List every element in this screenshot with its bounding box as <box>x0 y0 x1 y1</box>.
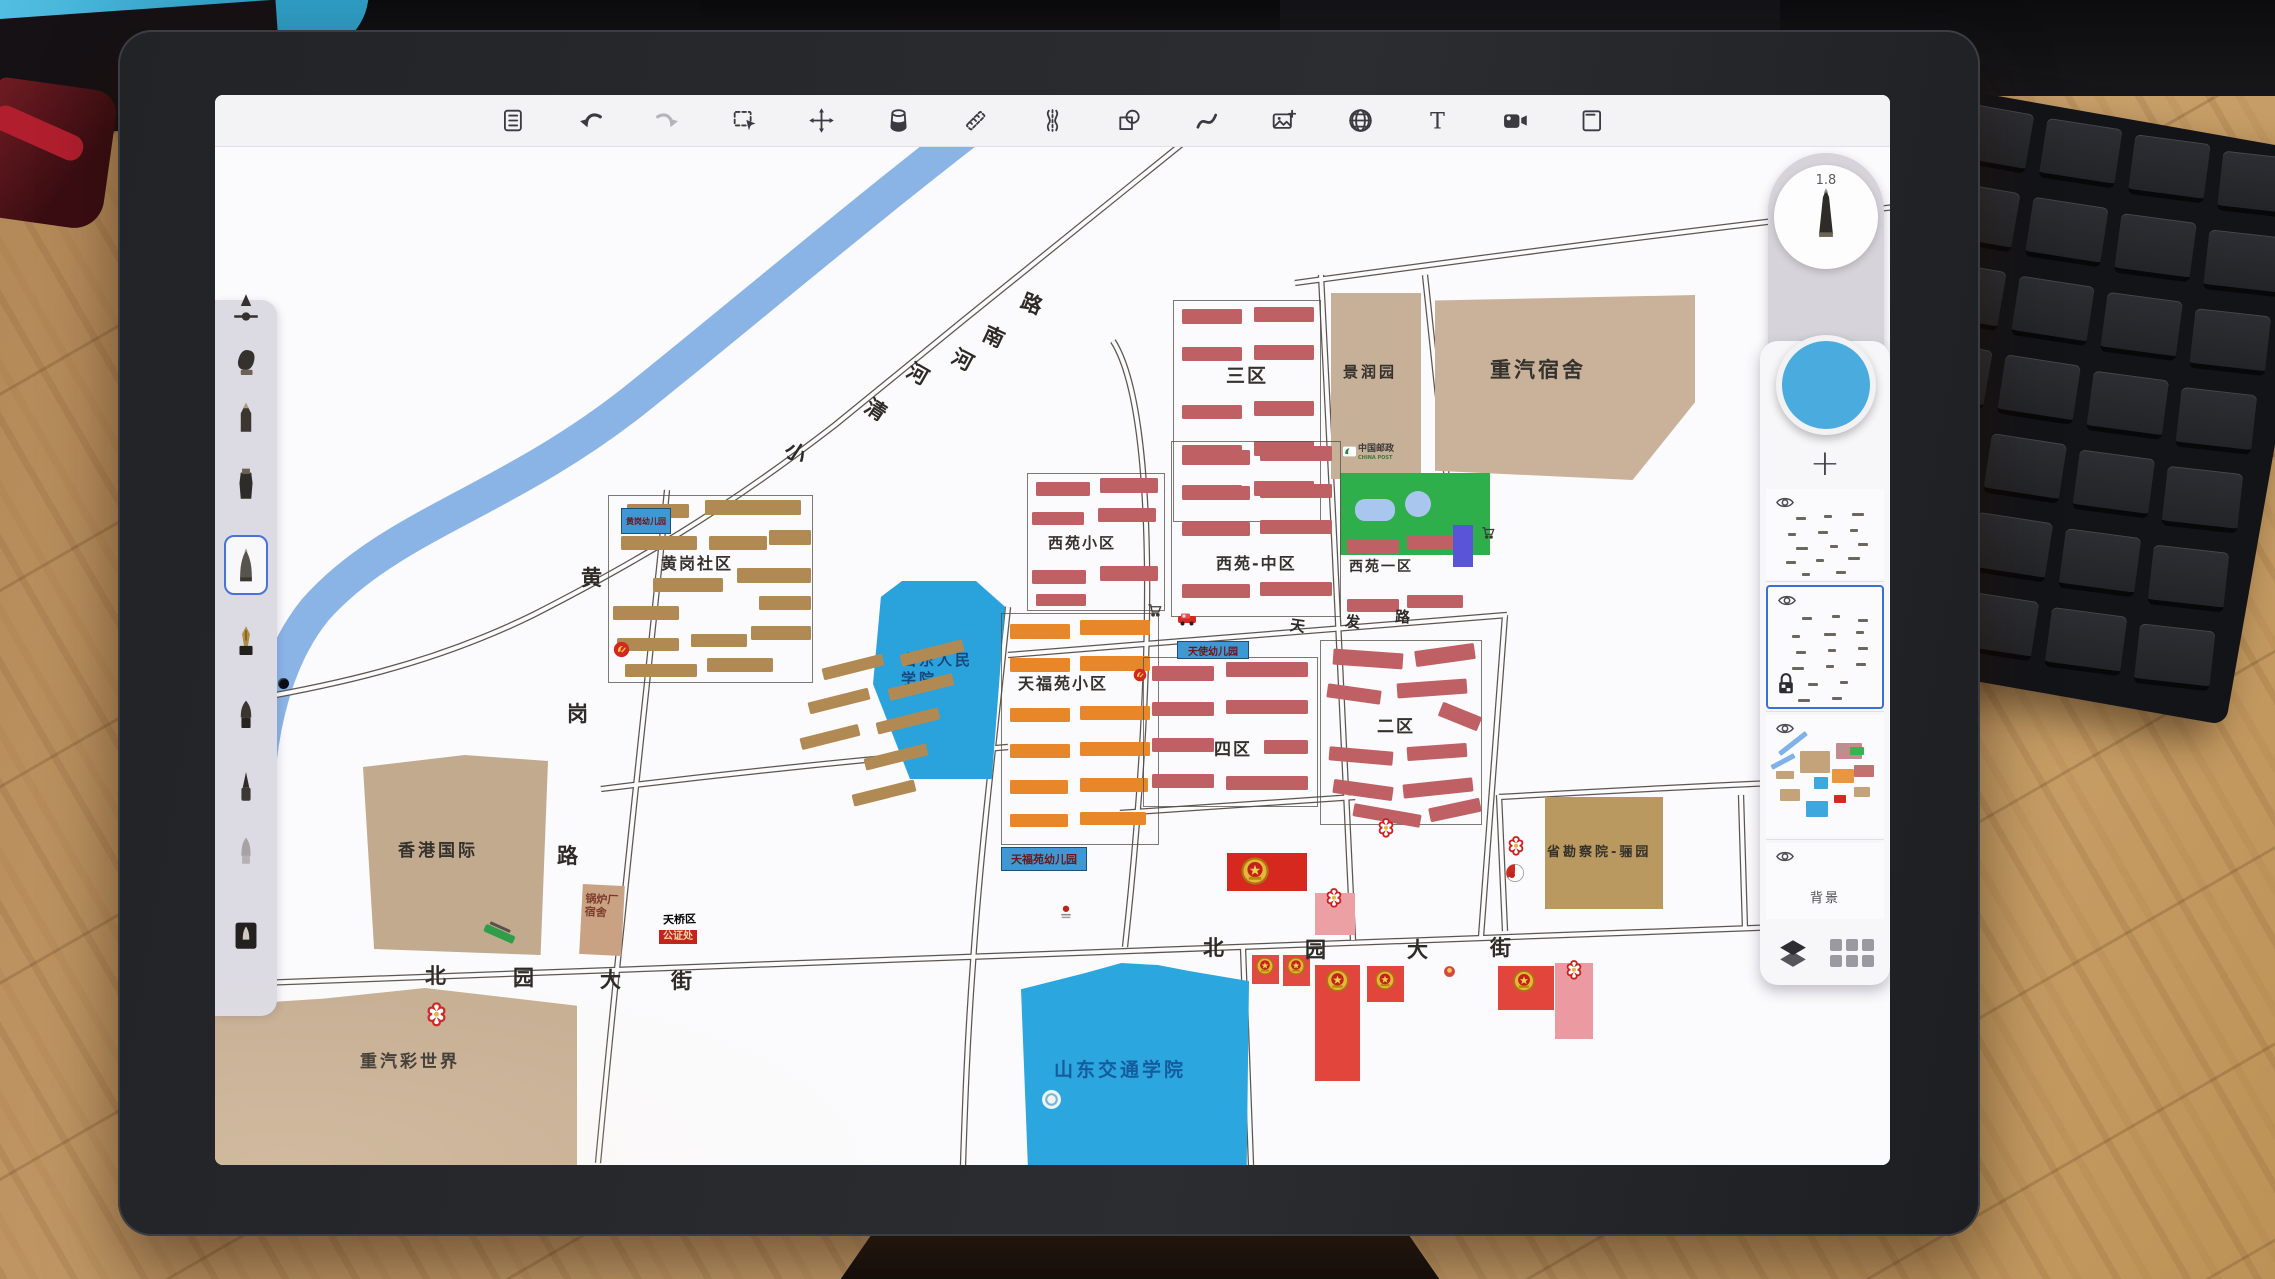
road-name-char: 路 <box>557 843 578 869</box>
layer-background[interactable]: 背景 <box>1766 843 1884 919</box>
road-name-char: 黄 <box>581 565 602 591</box>
brush-inkpen[interactable] <box>224 615 268 665</box>
estate-erqu: 二区 <box>1320 640 1482 825</box>
cart-icon <box>1147 603 1162 622</box>
label-sanqu: 三区 <box>1226 365 1268 389</box>
pond-2 <box>1405 491 1431 517</box>
text-icon[interactable]: T <box>1423 106 1453 136</box>
desk-photo: 香港国际重汽彩世界景润园重汽宿舍省勘察院-骊园山东人民 学院山东交通学院黄岗社区… <box>0 0 2275 1279</box>
brush-airbrush[interactable] <box>224 335 268 385</box>
layer-visibility-eye-icon[interactable] <box>1774 721 1796 740</box>
road-name-char: 园 <box>1305 937 1326 963</box>
shapes-icon[interactable] <box>1115 106 1145 136</box>
pond-1 <box>1355 499 1395 521</box>
road-name-char: 大 <box>600 967 621 993</box>
area-shandong-jiaotong-univ: 山东交通学院 <box>1021 963 1249 1165</box>
estate-siqu: 四区 <box>1143 657 1318 807</box>
right-panel: 1.8 + 背景 <box>1760 153 1890 985</box>
svg-text:T: T <box>1430 108 1445 134</box>
postlogo-icon <box>1343 443 1356 462</box>
boiler-dorm-label: 锅炉厂 宿舍 <box>584 892 618 920</box>
cross-icon <box>1505 835 1527 861</box>
top-toolbar: T <box>215 95 1890 147</box>
layer-visibility-eye-icon[interactable] <box>1774 495 1796 514</box>
emblem-icon <box>1513 970 1535 996</box>
tablet: 香港国际重汽彩世界景润园重汽宿舍省勘察院-骊园山东人民 学院山东交通学院黄岗社区… <box>118 30 1980 1236</box>
add-layer-button[interactable]: + <box>1760 445 1890 485</box>
transparency-lock-icon <box>1776 671 1796 701</box>
label-huanggang-shequ: 黄岗社区 <box>661 554 733 574</box>
tianqiao-district-label: 天桥区 <box>663 912 696 926</box>
layer-visibility-eye-icon[interactable] <box>1774 849 1796 868</box>
label-tianfuyuan-xiaoqu: 天福苑小区 <box>1018 674 1108 694</box>
china-post-en: CHINA POST <box>1358 455 1392 461</box>
road-name-char: 发 <box>1344 612 1361 632</box>
layers-stack-icon[interactable] <box>1777 938 1809 968</box>
redo-icon[interactable] <box>653 106 683 136</box>
fill-icon[interactable] <box>884 106 914 136</box>
brush-finenib[interactable] <box>224 762 268 812</box>
layer-panel-footer <box>1766 925 1884 981</box>
cart-icon <box>1481 525 1495 544</box>
brush-size-icon[interactable] <box>224 283 268 333</box>
brush-conenib[interactable] <box>224 535 268 595</box>
cross-icon <box>423 1001 450 1032</box>
label-jingrunyuan: 景润园 <box>1343 363 1397 382</box>
label-erqu: 二区 <box>1377 717 1415 738</box>
brush-nib-icon <box>1809 188 1843 240</box>
china-post-cn: 中国邮政 <box>1358 444 1394 455</box>
layer-1[interactable] <box>1766 489 1884 579</box>
reddot-icon <box>1443 963 1456 982</box>
layer-3-map[interactable] <box>1766 715 1884 837</box>
label-siqu: 四区 <box>1214 740 1252 761</box>
background-layer-label: 背景 <box>1766 887 1884 906</box>
layer-visibility-eye-icon[interactable] <box>1776 593 1798 612</box>
party-icon <box>1133 667 1147 686</box>
label-hongkong-intl: 香港国际 <box>398 841 478 862</box>
layer-options-grid-icon[interactable] <box>1830 939 1874 967</box>
menu-icon[interactable] <box>499 106 529 136</box>
brush-roundnib[interactable] <box>224 688 268 738</box>
label-shandong-jiaotong-univ: 山东交通学院 <box>1054 1059 1186 1083</box>
brush-marker[interactable] <box>224 460 268 510</box>
layer-2-selected[interactable] <box>1766 585 1884 709</box>
label-xiyuan-zhongqu: 西苑-中区 <box>1216 554 1297 574</box>
label-xiyuan-xiaoqu: 西苑小区 <box>1048 534 1116 553</box>
notary-box-label: 公证处 <box>659 930 697 944</box>
emblem-icon <box>1326 969 1349 996</box>
estate-xiyuan-zhongqu: 西苑-中区 <box>1171 441 1341 617</box>
road-name-char: 街 <box>1490 935 1511 961</box>
label-zhongqi-color-world: 重汽彩世界 <box>360 1052 460 1073</box>
tinysign-icon <box>1060 905 1072 925</box>
brush-puck[interactable]: 1.8 <box>1774 165 1878 269</box>
greensign-icon <box>483 925 517 944</box>
tianshi-kindergarten-sign: 天使幼儿园 <box>1177 641 1249 659</box>
label-zhongqi-dorm: 重汽宿舍 <box>1490 357 1586 383</box>
ruler-icon[interactable] <box>961 106 991 136</box>
image-add-icon[interactable] <box>1269 106 1299 136</box>
road-name-char: 街 <box>671 968 692 994</box>
road-name-char: 北 <box>425 963 446 989</box>
area-zhongqi-color-world: 重汽彩世界 <box>215 988 577 1165</box>
violet-building <box>1453 525 1473 567</box>
estate-hatch-rows <box>800 647 1015 817</box>
area-hongkong-intl: 香港国际 <box>363 755 548 955</box>
road-name-char: 北 <box>1203 935 1224 961</box>
label-kanchayuan-liyuan: 省勘察院-骊园 <box>1547 845 1651 861</box>
nudge-icon[interactable] <box>807 106 837 136</box>
car-icon <box>1177 611 1197 630</box>
emblem-icon <box>1287 957 1305 979</box>
brush-size-value: 1.8 <box>1774 173 1878 188</box>
drawing-canvas[interactable]: 香港国际重汽彩世界景润园重汽宿舍省勘察院-骊园山东人民 学院山东交通学院黄岗社区… <box>215 95 1890 1165</box>
app-screen: 香港国际重汽彩世界景润园重汽宿舍省勘察院-骊园山东人民 学院山东交通学院黄岗社区… <box>215 95 1890 1165</box>
estate-tianfuyuan-xiaoqu: 天福苑小区 <box>1001 613 1159 845</box>
import-icon[interactable] <box>1500 106 1530 136</box>
road-name-char: 路 <box>1395 608 1411 628</box>
party-icon <box>613 641 630 662</box>
tianfuyuan-kindergarten-sign: 天福苑幼儿园 <box>1001 847 1087 871</box>
brush-library[interactable] <box>224 910 268 960</box>
area-kanchayuan-liyuan: 省勘察院-骊园 <box>1545 797 1663 909</box>
cross-icon <box>1563 959 1585 985</box>
road-name-char: 天 <box>1289 616 1306 637</box>
emblem-icon <box>1256 957 1274 979</box>
emblem-icon <box>1375 970 1395 994</box>
estate-xiyuan-xiaoqu: 西苑小区 <box>1027 473 1165 611</box>
whitelogo-icon <box>1041 1089 1062 1114</box>
selection-icon[interactable] <box>730 106 760 136</box>
symmetry-icon[interactable] <box>1038 106 1068 136</box>
undo-icon[interactable] <box>576 106 606 136</box>
road-name-char: 园 <box>513 965 534 991</box>
brush-pencil[interactable] <box>224 393 268 443</box>
halfcircle-icon <box>1505 863 1525 887</box>
brush-fadednib[interactable] <box>224 825 268 875</box>
huanggang-kindergarten-sign: 黄岗幼儿园 <box>621 508 671 534</box>
frame-icon[interactable] <box>1577 106 1607 136</box>
brush-palette <box>215 300 277 1016</box>
cross-icon <box>1375 817 1397 843</box>
stroke-icon[interactable] <box>1192 106 1222 136</box>
road-name-char: 大 <box>1407 937 1428 963</box>
tablet-camera <box>278 678 289 689</box>
perspective-icon[interactable] <box>1346 106 1376 136</box>
label-xiyuan-yiqu: 西苑一区 <box>1349 559 1413 577</box>
color-puck[interactable] <box>1776 335 1876 435</box>
cross-icon <box>1323 887 1345 913</box>
road-name-char: 岗 <box>567 701 588 727</box>
emblem-icon <box>1241 857 1269 889</box>
